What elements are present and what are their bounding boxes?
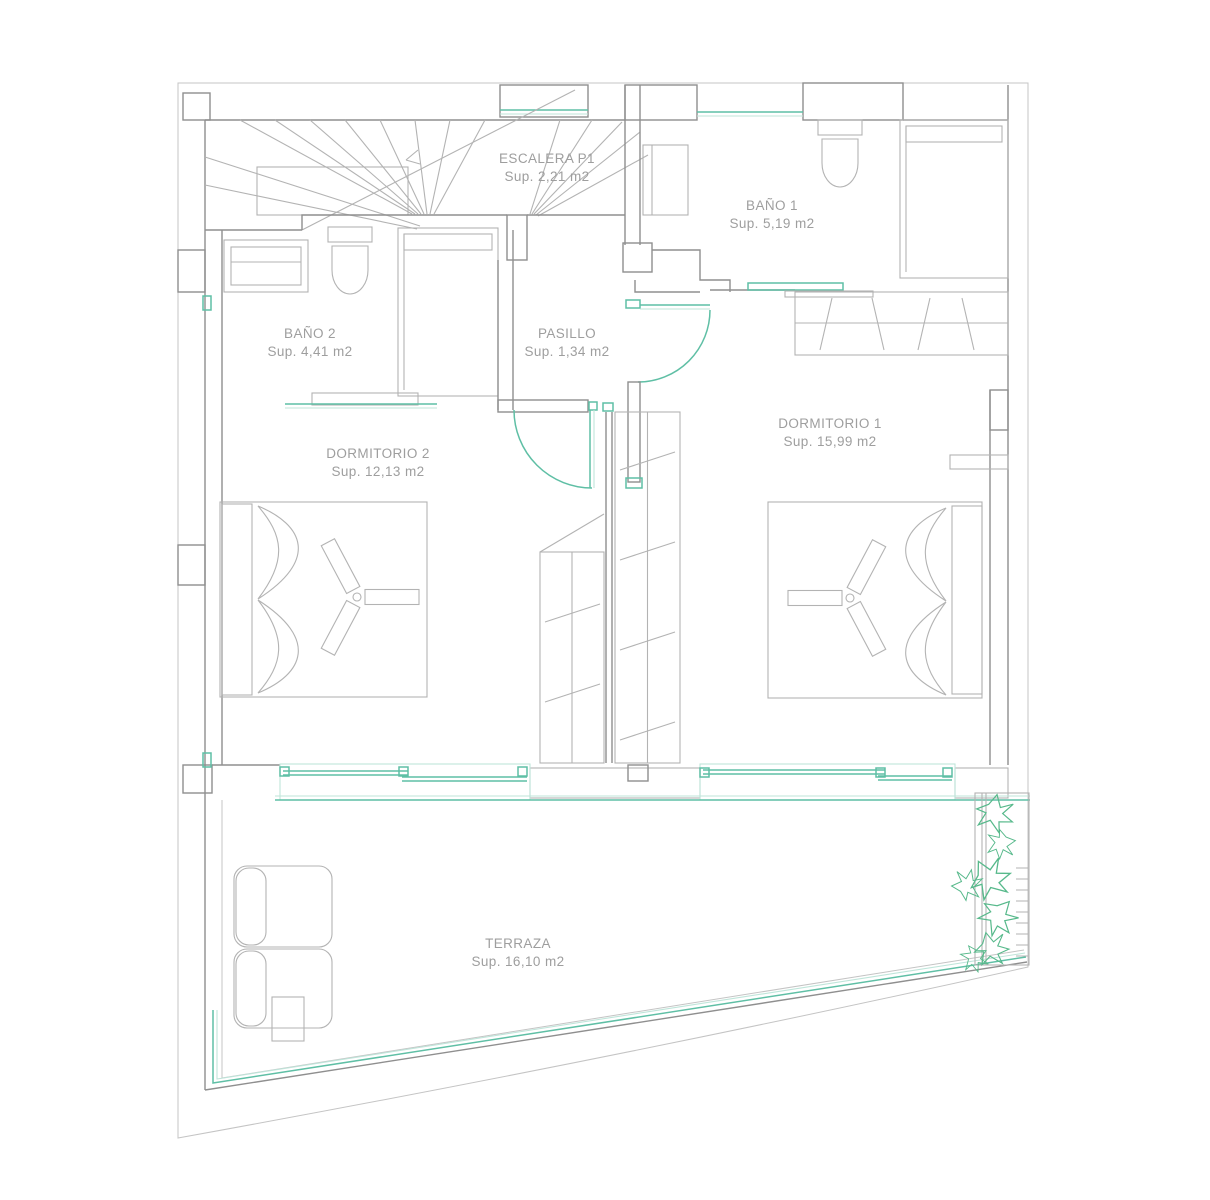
closet-hatch: [795, 292, 1008, 355]
toilet-icon: [818, 120, 862, 187]
bathroom-2: [224, 227, 588, 412]
ceiling-fan-icon: [321, 539, 419, 656]
room-name: BAÑO 1: [729, 197, 814, 215]
room-area: Sup. 12,13 m2: [326, 463, 430, 481]
vanity-icon: [224, 240, 308, 292]
room-label-pasillo: PASILLO Sup. 1,34 m2: [524, 325, 609, 361]
toilet-icon: [328, 227, 372, 294]
bed-dormitorio2: [220, 502, 427, 697]
room-label-dormitorio2: DORMITORIO 2 Sup. 12,13 m2: [326, 445, 430, 481]
side-table: [272, 997, 304, 1041]
room-label-bano1: BAÑO 1 Sup. 5,19 m2: [729, 197, 814, 233]
sliding-door-right: [700, 764, 955, 800]
room-area: Sup. 4,41 m2: [267, 343, 352, 361]
terrace-railing: [205, 800, 1027, 1090]
ceiling-fan-icon: [788, 540, 886, 657]
planter: [975, 793, 1029, 965]
stair-landing: [257, 167, 408, 215]
room-label-bano2: BAÑO 2 Sup. 4,41 m2: [267, 325, 352, 361]
bathroom-1: [640, 85, 1008, 355]
room-label-dormitorio1: DORMITORIO 1 Sup. 15,99 m2: [778, 415, 882, 451]
bed-dormitorio1: [768, 455, 1008, 698]
right-wall: [990, 85, 1008, 765]
floor-plan-drawing: [0, 0, 1210, 1200]
radiator: [285, 393, 437, 408]
room-name: ESCALERA P1: [499, 150, 595, 168]
room-label-terraza: TERRAZA Sup. 16,10 m2: [471, 935, 564, 971]
room-label-escalera: ESCALERA P1 Sup. 2,21 m2: [499, 150, 595, 186]
room-name: DORMITORIO 1: [778, 415, 882, 433]
room-name: BAÑO 2: [267, 325, 352, 343]
plant-leaves-icon: [952, 792, 1025, 977]
divider-wall: [606, 412, 612, 763]
shower-icon: [900, 120, 1008, 278]
wardrobes: [540, 403, 680, 763]
room-area: Sup. 2,21 m2: [499, 168, 595, 186]
room-area: Sup. 15,99 m2: [778, 433, 882, 451]
sofa: [234, 866, 332, 1028]
room-name: TERRAZA: [471, 935, 564, 953]
top-wall: [183, 83, 1008, 120]
floor-plan: ESCALERA P1 Sup. 2,21 m2 BAÑO 1 Sup. 5,1…: [0, 0, 1210, 1200]
wardrobe-left: [540, 514, 604, 763]
room-area: Sup. 5,19 m2: [729, 215, 814, 233]
closet-sliding-doors: [748, 283, 873, 297]
hallway: [514, 243, 730, 488]
shower-icon: [398, 228, 498, 396]
room-area: Sup. 1,34 m2: [524, 343, 609, 361]
sliding-door-left: [280, 764, 530, 800]
wardrobe-right: [615, 412, 680, 763]
room-name: DORMITORIO 2: [326, 445, 430, 463]
terrace-wall: [212, 764, 1030, 800]
left-wall: [178, 120, 222, 1090]
shelf: [950, 455, 1008, 469]
door-swing-bathroom1: [626, 300, 710, 382]
door-swing-dormitorio2: [514, 402, 597, 488]
bathroom1-cabinet: [643, 145, 688, 215]
room-area: Sup. 16,10 m2: [471, 953, 564, 971]
room-name: PASILLO: [524, 325, 609, 343]
